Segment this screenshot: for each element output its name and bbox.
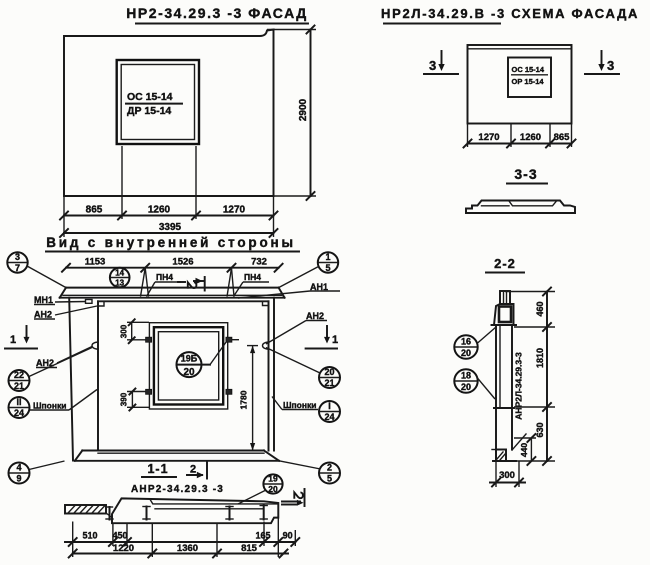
svg-text:630: 630 bbox=[535, 422, 545, 437]
svg-text:24: 24 bbox=[14, 408, 24, 418]
svg-text:20: 20 bbox=[183, 367, 195, 378]
svg-text:2900: 2900 bbox=[298, 98, 309, 121]
svg-text:Вид с внутренней стороны: Вид с внутренней стороны bbox=[46, 235, 296, 250]
svg-text:732: 732 bbox=[251, 257, 267, 268]
svg-text:165: 165 bbox=[255, 531, 270, 541]
svg-text:1: 1 bbox=[325, 252, 330, 262]
svg-text:815: 815 bbox=[241, 543, 258, 554]
svg-text:II: II bbox=[16, 397, 21, 407]
svg-text:460: 460 bbox=[535, 301, 545, 316]
svg-text:ПН4: ПН4 bbox=[156, 272, 173, 282]
svg-text:1360: 1360 bbox=[177, 543, 198, 554]
svg-text:450: 450 bbox=[112, 531, 127, 541]
svg-text:19Б: 19Б bbox=[181, 354, 198, 364]
svg-text:1153: 1153 bbox=[85, 257, 106, 268]
svg-text:20: 20 bbox=[461, 348, 471, 358]
svg-text:ОС 15-14: ОС 15-14 bbox=[512, 65, 545, 74]
svg-text:20: 20 bbox=[268, 484, 278, 494]
svg-text:300: 300 bbox=[120, 324, 129, 338]
svg-text:1: 1 bbox=[10, 334, 16, 346]
svg-text:ОС 15-14: ОС 15-14 bbox=[127, 91, 173, 103]
svg-text:22: 22 bbox=[14, 370, 24, 380]
svg-text:НР2-34.29.3 -3 ФАСАД: НР2-34.29.3 -3 ФАСАД bbox=[126, 5, 308, 21]
svg-text:1-1: 1-1 bbox=[147, 462, 168, 476]
svg-text:5: 5 bbox=[325, 263, 330, 273]
svg-text:2: 2 bbox=[327, 463, 332, 473]
svg-text:1270: 1270 bbox=[223, 205, 246, 216]
svg-text:АН2: АН2 bbox=[306, 311, 324, 321]
svg-text:Шпонки: Шпонки bbox=[33, 401, 66, 411]
svg-text:7: 7 bbox=[15, 263, 20, 273]
svg-text:1260: 1260 bbox=[520, 132, 541, 143]
svg-text:ДР 15-14: ДР 15-14 bbox=[127, 105, 171, 117]
svg-text:16: 16 bbox=[461, 337, 471, 347]
svg-text:20: 20 bbox=[324, 367, 334, 377]
svg-text:390: 390 bbox=[120, 392, 129, 406]
svg-text:3395: 3395 bbox=[159, 222, 182, 233]
svg-text:90: 90 bbox=[283, 531, 293, 541]
svg-text:Шпонки: Шпонки bbox=[283, 400, 316, 410]
svg-text:3-3: 3-3 bbox=[514, 166, 537, 182]
svg-text:4: 4 bbox=[16, 463, 21, 473]
svg-text:1: 1 bbox=[332, 334, 338, 346]
svg-text:18: 18 bbox=[461, 371, 471, 381]
svg-text:АН2: АН2 bbox=[34, 310, 52, 320]
svg-text:510: 510 bbox=[82, 531, 97, 541]
svg-text:1810: 1810 bbox=[535, 348, 545, 368]
svg-text:1270: 1270 bbox=[478, 132, 499, 143]
svg-text:3: 3 bbox=[607, 58, 614, 73]
svg-text:20: 20 bbox=[461, 382, 471, 392]
svg-text:1220: 1220 bbox=[113, 543, 134, 554]
svg-text:НР2Л-34.29.В -3 СХЕМА ФАСАДА: НР2Л-34.29.В -3 СХЕМА ФАСАДА bbox=[381, 6, 639, 21]
svg-text:2: 2 bbox=[190, 464, 196, 476]
svg-text:ПН4: ПН4 bbox=[244, 272, 261, 282]
svg-text:21: 21 bbox=[14, 381, 24, 391]
svg-text:ОР 15-14: ОР 15-14 bbox=[512, 77, 545, 86]
svg-text:МН1: МН1 bbox=[34, 295, 53, 305]
svg-text:3: 3 bbox=[15, 252, 20, 262]
svg-text:865: 865 bbox=[86, 205, 103, 216]
svg-text:9: 9 bbox=[16, 474, 21, 484]
svg-text:14: 14 bbox=[115, 269, 124, 278]
svg-text:I: I bbox=[328, 401, 331, 411]
svg-text:1780: 1780 bbox=[239, 390, 249, 409]
svg-text:2-2: 2-2 bbox=[494, 256, 516, 271]
svg-text:19: 19 bbox=[268, 474, 278, 484]
svg-text:21: 21 bbox=[324, 378, 334, 388]
svg-text:1526: 1526 bbox=[172, 257, 193, 268]
svg-text:5: 5 bbox=[327, 474, 332, 484]
svg-text:АНР2-34.29.3 -3: АНР2-34.29.3 -3 bbox=[131, 484, 224, 495]
svg-text:3: 3 bbox=[429, 58, 436, 73]
svg-text:300: 300 bbox=[499, 470, 515, 481]
svg-text:865: 865 bbox=[554, 132, 571, 143]
svg-text:13: 13 bbox=[115, 279, 124, 288]
svg-text:АНР2Л-34.29.3-3: АНР2Л-34.29.3-3 bbox=[514, 352, 524, 420]
svg-text:24: 24 bbox=[324, 412, 334, 422]
svg-text:1260: 1260 bbox=[148, 205, 171, 216]
svg-text:440: 440 bbox=[519, 443, 529, 457]
